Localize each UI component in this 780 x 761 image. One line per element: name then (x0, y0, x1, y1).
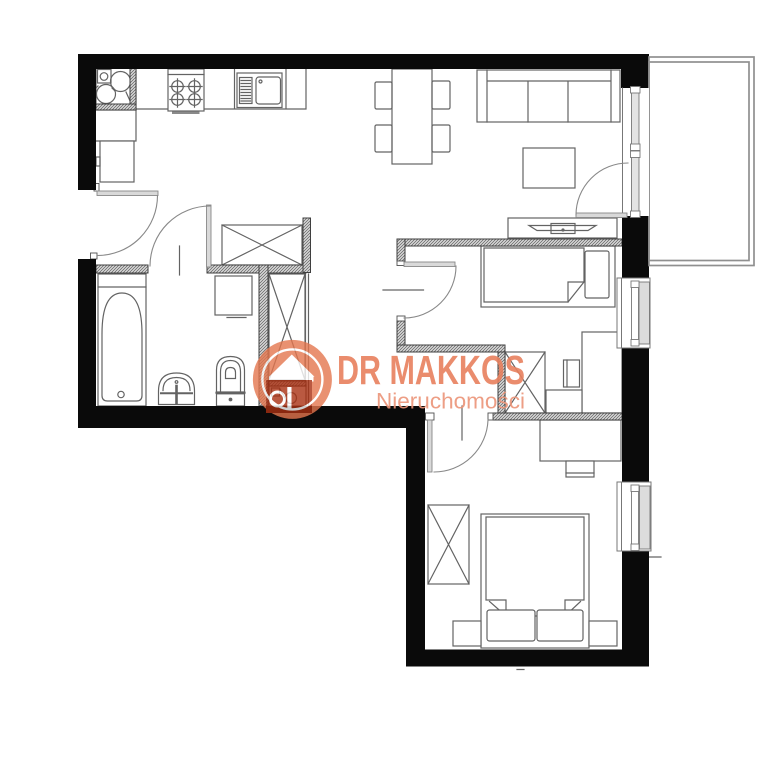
svg-text:DR MAKKOS: DR MAKKOS (337, 347, 525, 393)
svg-text:Nieruchomości: Nieruchomości (376, 389, 525, 414)
